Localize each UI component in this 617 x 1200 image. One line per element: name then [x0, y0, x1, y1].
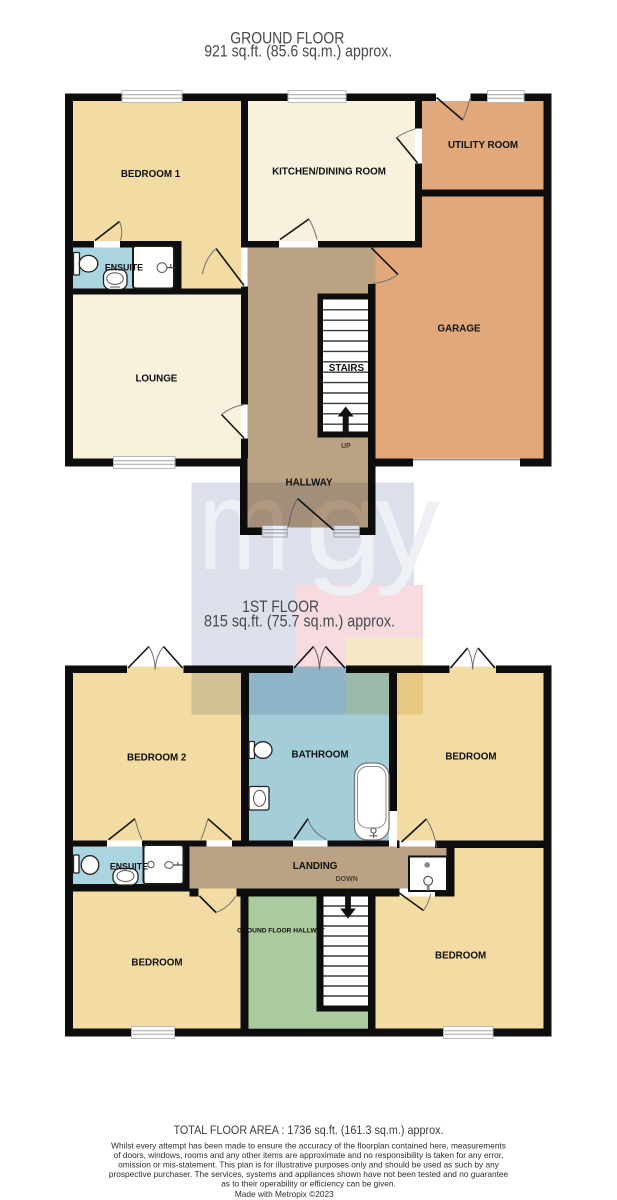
svg-text:UP: UP — [341, 443, 351, 450]
svg-text:LANDING: LANDING — [293, 861, 338, 872]
svg-text:BEDROOM 2: BEDROOM 2 — [127, 753, 187, 764]
svg-text:BATHROOM: BATHROOM — [292, 750, 349, 761]
svg-text:prospective purchaser. The ser: prospective purchaser. The services, sys… — [109, 1169, 509, 1179]
svg-text:y: y — [375, 454, 440, 597]
svg-text:TOTAL FLOOR AREA : 1736 sq.ft.: TOTAL FLOOR AREA : 1736 sq.ft. (161.3 sq… — [174, 1123, 444, 1137]
svg-text:BEDROOM: BEDROOM — [445, 752, 496, 763]
svg-text:UTILITY ROOM: UTILITY ROOM — [448, 140, 518, 151]
svg-text:Made with Metropix ©2023: Made with Metropix ©2023 — [235, 1189, 334, 1199]
svg-text:815 sq.ft. (75.7 sq.m.) approx: 815 sq.ft. (75.7 sq.m.) approx. — [204, 612, 395, 631]
svg-text:ENSUITE: ENSUITE — [110, 862, 148, 872]
svg-text:GROUND FLOOR HALLWAY: GROUND FLOOR HALLWAY — [237, 928, 325, 935]
svg-text:as to their operability or eff: as to their operability or efficiency ca… — [221, 1179, 396, 1189]
svg-text:DOWN: DOWN — [336, 876, 358, 883]
svg-text:GARAGE: GARAGE — [437, 324, 480, 335]
svg-text:BEDROOM 1: BEDROOM 1 — [121, 169, 181, 180]
svg-text:omission or mis-statement. Thi: omission or mis-statement. This plan is … — [118, 1160, 500, 1170]
svg-text:LOUNGE: LOUNGE — [135, 374, 177, 385]
svg-text:921 sq.ft. (85.6 sq.m.) approx: 921 sq.ft. (85.6 sq.m.) approx. — [204, 42, 392, 61]
svg-text:of doors, windows, rooms and a: of doors, windows, rooms and any other i… — [114, 1150, 504, 1160]
svg-text:m: m — [198, 454, 290, 597]
svg-text:ENSUITE: ENSUITE — [105, 263, 143, 273]
svg-text:BEDROOM: BEDROOM — [131, 958, 182, 969]
svg-text:STAIRS: STAIRS — [329, 363, 365, 374]
svg-text:g: g — [305, 454, 383, 597]
svg-text:Whilst every attempt has been: Whilst every attempt has been made to en… — [111, 1140, 506, 1150]
svg-text:KITCHEN/DINING ROOM: KITCHEN/DINING ROOM — [272, 167, 386, 178]
svg-text:BEDROOM: BEDROOM — [435, 951, 486, 962]
